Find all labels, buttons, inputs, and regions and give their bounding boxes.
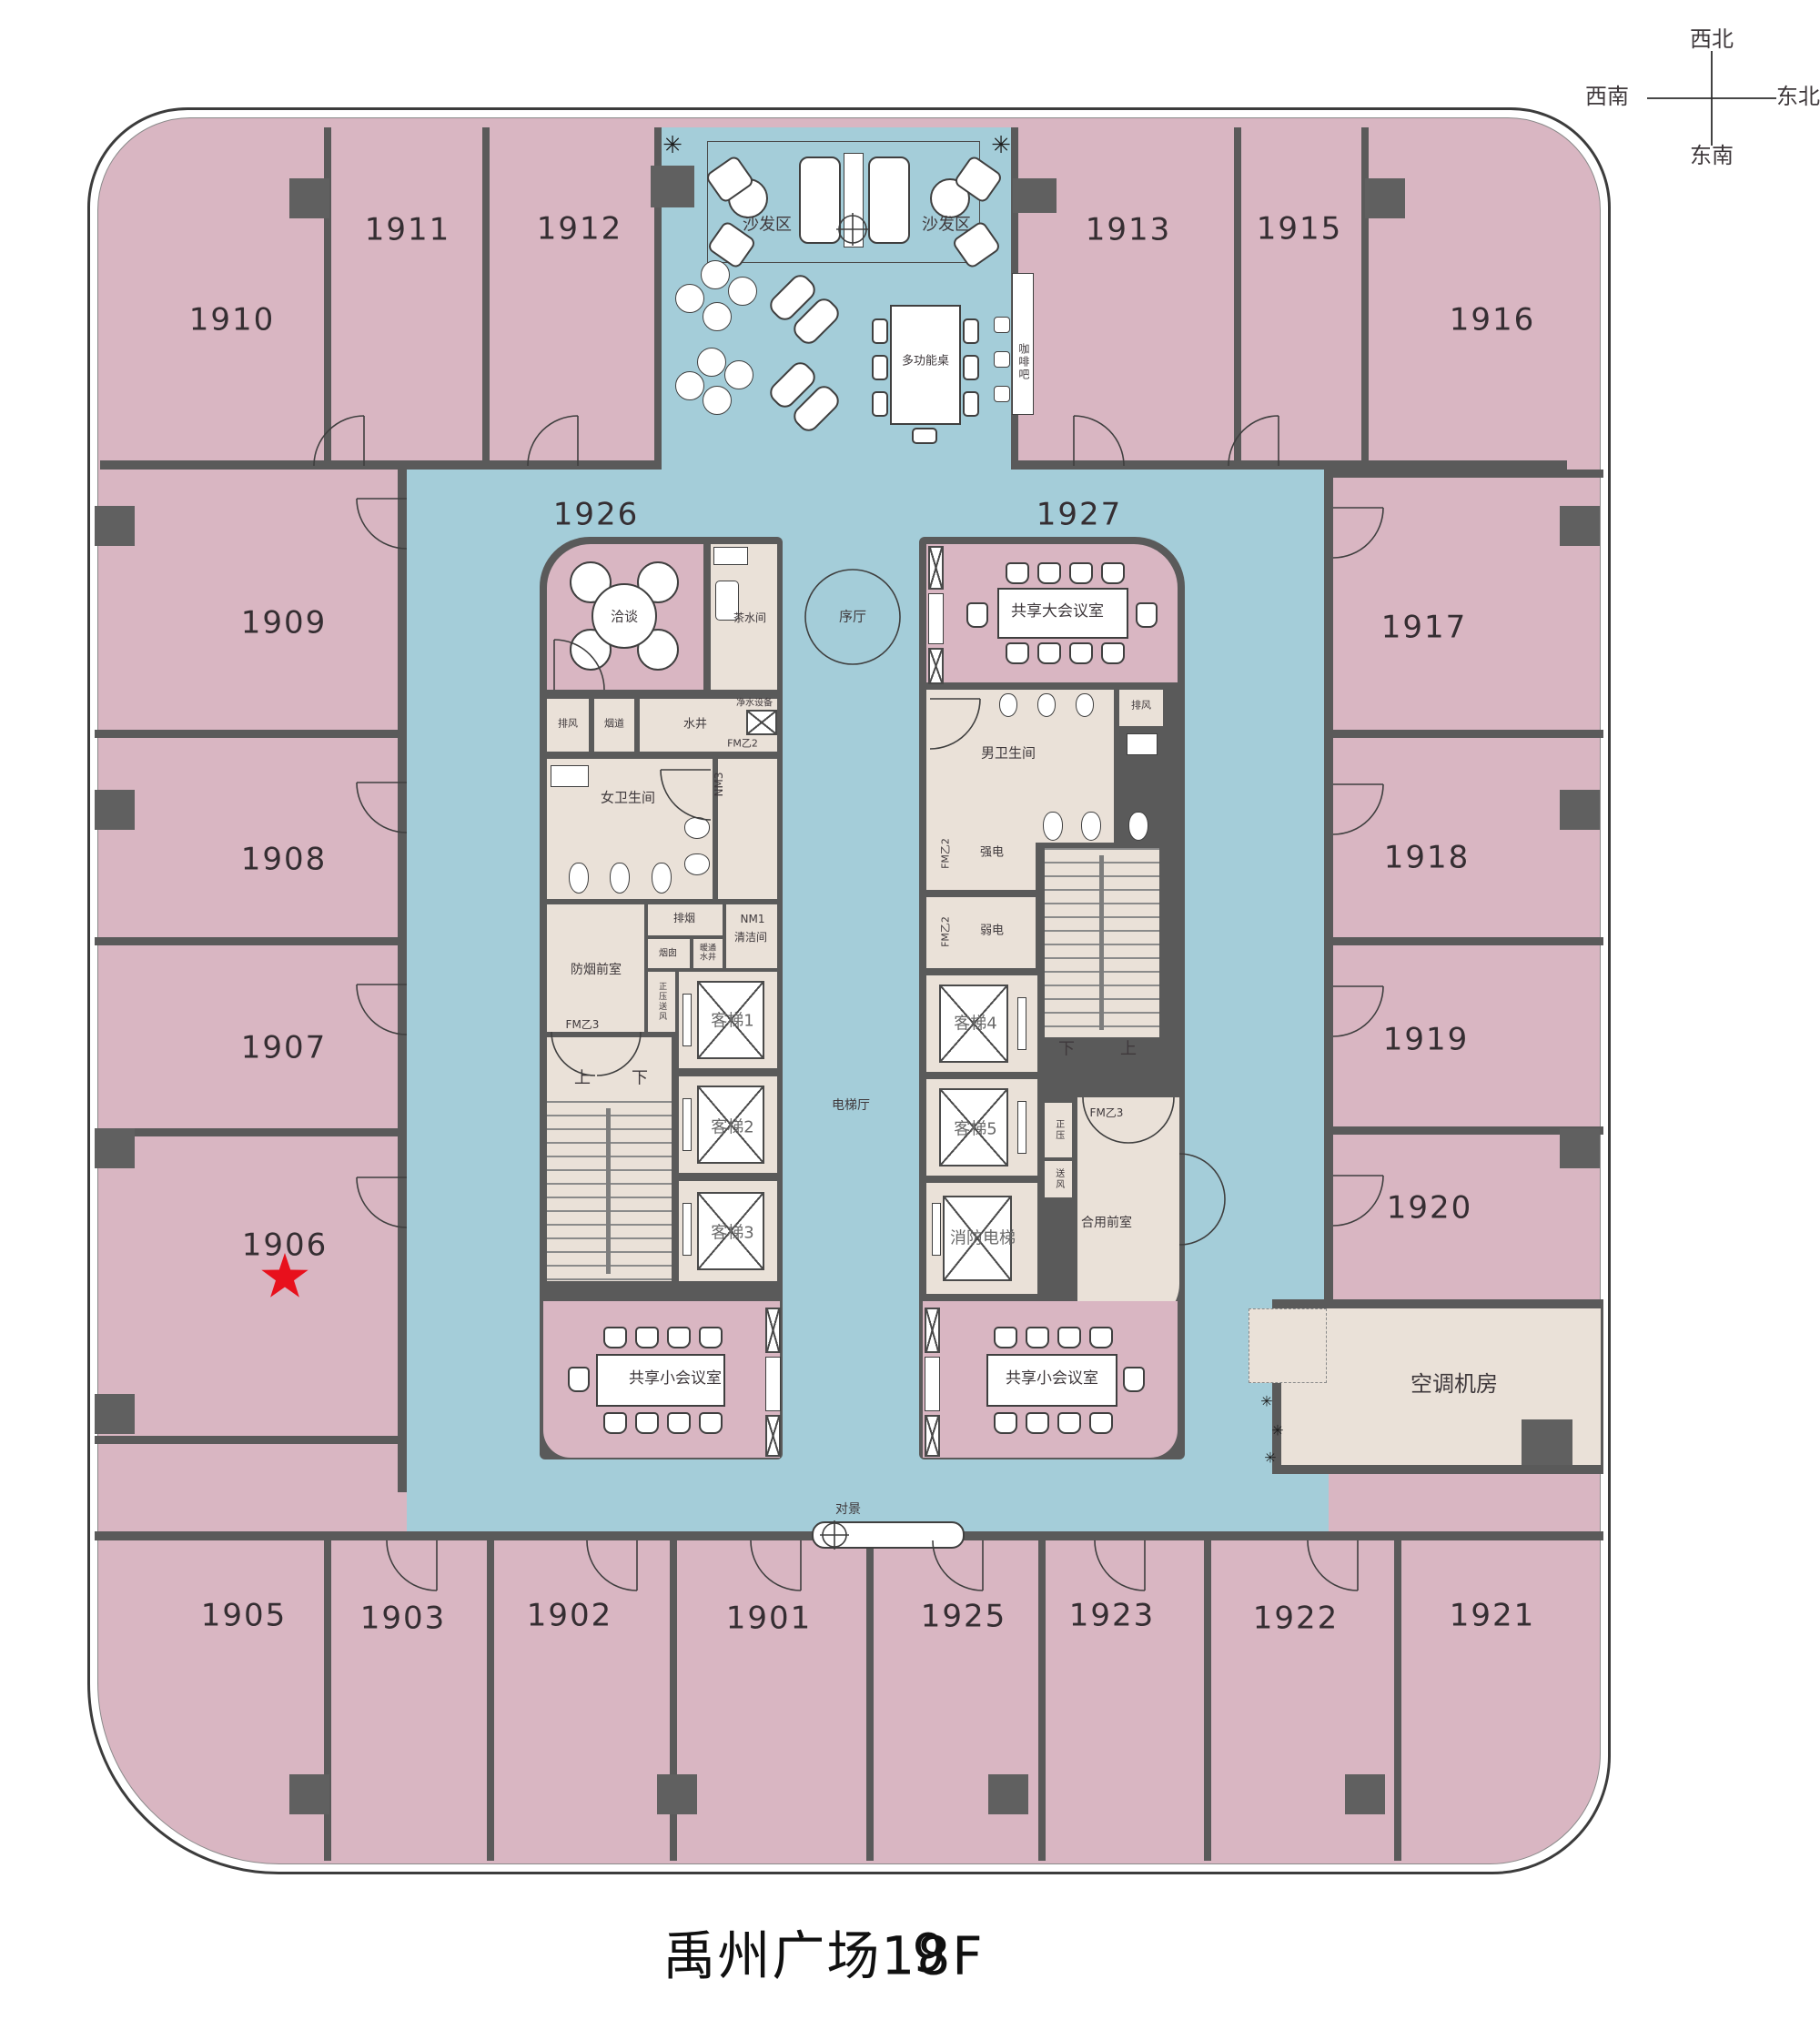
meeting-chair [1069, 562, 1093, 584]
meeting-chair [994, 1412, 1017, 1434]
weak-elec-label: 弱电 [980, 925, 1004, 939]
large-meeting-label: 共享大会议室 [1011, 603, 1104, 621]
floorplan-page: { "title": { "prefix": "禹州广场1", "digit_b… [0, 0, 1820, 2040]
smoke-exhaust-label: 排烟 [673, 913, 695, 925]
lounge-chair [675, 284, 704, 313]
lift-door [1017, 997, 1026, 1050]
meeting-chair [699, 1327, 723, 1348]
room-1919-label: 1919 [1383, 1022, 1470, 1057]
meeting-chair [1006, 642, 1029, 664]
lounge-chair [703, 302, 732, 331]
lounge-chair [675, 371, 704, 400]
column [988, 1774, 1028, 1814]
fm-b2-b-label: FM乙2 [941, 916, 953, 947]
stairs-down-label-right: 下 [1058, 1041, 1075, 1060]
sofa [799, 157, 841, 244]
wall [1324, 937, 1603, 945]
lift-door [682, 994, 692, 1046]
meeting-chair [1006, 562, 1029, 584]
column [1522, 1419, 1572, 1465]
feature-view-label: 对景 [835, 1502, 861, 1517]
stairs-up-label: 上 [574, 1070, 591, 1089]
room-1907-label: 1907 [241, 1030, 328, 1065]
hvac-room-label: 空调机房 [1410, 1372, 1498, 1398]
wall [1038, 1540, 1046, 1861]
column [95, 1128, 135, 1168]
nm3-label: NM3 [713, 773, 726, 797]
lounge-chair [728, 277, 757, 306]
sofa-area-left-label: 沙发区 [743, 217, 792, 236]
water-shaft-label: 水井 [683, 719, 707, 732]
exhaust-right-label: 排风 [1131, 701, 1151, 712]
room-1921-label: 1921 [1450, 1598, 1536, 1633]
column [95, 1394, 135, 1434]
room-1923-label: 1923 [1069, 1598, 1156, 1633]
room-1903-label: 1903 [360, 1601, 447, 1636]
room-1922-label: 1922 [1253, 1601, 1340, 1636]
stair-rail [606, 1108, 611, 1274]
meeting-chair [1089, 1327, 1113, 1348]
room-1913-label: 1913 [1086, 212, 1172, 247]
lift5-label: 客梯5 [954, 1121, 996, 1140]
meeting-chair [1123, 1367, 1145, 1392]
toilet [684, 853, 710, 875]
table-chair [872, 355, 888, 380]
meeting-chair [1069, 642, 1093, 664]
toilet [684, 817, 710, 839]
room-1901-label: 1901 [726, 1601, 813, 1636]
wall [1324, 730, 1603, 738]
wall [95, 1128, 407, 1136]
column [1560, 1128, 1600, 1168]
lift-door [682, 1203, 692, 1256]
exhaust-label: 排风 [558, 719, 578, 731]
column [651, 166, 694, 207]
wall [1204, 1540, 1211, 1861]
room-1909-label: 1909 [241, 605, 328, 641]
table-chair [912, 428, 937, 444]
plant-icon: ✳ [1271, 1422, 1283, 1439]
column [289, 1774, 329, 1814]
toilet [1128, 812, 1148, 841]
wall [1234, 127, 1241, 466]
pressure-b-label: 送风 [1053, 1168, 1064, 1190]
bar-stool [994, 317, 1010, 333]
meeting-chair [603, 1412, 627, 1434]
lounge-chair [697, 348, 726, 377]
room-1915-label: 1915 [1257, 211, 1343, 247]
plant-icon: ✳ [991, 132, 1011, 159]
column [1345, 1774, 1385, 1814]
compass-northwest-label: 西北 [1690, 27, 1734, 53]
shaft-strip [765, 1357, 781, 1411]
meeting-chair [1089, 1412, 1113, 1434]
column [1013, 178, 1057, 213]
lounge-chair [703, 386, 732, 415]
title-prefix: 禹州广场1 [662, 1925, 916, 1987]
womens-sink [551, 765, 589, 787]
plant-icon: ✳ [1264, 1449, 1276, 1467]
mens-sink [1127, 733, 1158, 755]
meeting-chair [667, 1327, 691, 1348]
room-1911-label: 1911 [365, 212, 451, 247]
meeting-chair [1057, 1412, 1081, 1434]
lift3-label: 客梯3 [711, 1225, 753, 1244]
mens-room-label: 男卫生间 [981, 745, 1036, 761]
column [1365, 178, 1405, 218]
title-digit-stack: 89 [916, 1926, 952, 1987]
lift-door [932, 1203, 941, 1256]
compass-northeast-label: 东北 [1776, 85, 1820, 110]
wall [95, 937, 407, 945]
room-1925-label: 1925 [921, 1599, 1007, 1634]
stairs-down-label: 下 [632, 1070, 648, 1089]
shared-lobby-label: 合用前室 [1081, 1216, 1132, 1230]
pressure-air-label: 正压送风 [657, 982, 666, 1022]
bar-stool [994, 351, 1010, 368]
urinal [999, 693, 1017, 717]
room-1920-label: 1920 [1387, 1190, 1473, 1226]
fm-b2-a-label: FM乙2 [941, 838, 953, 869]
wall [100, 460, 662, 470]
meeting-chair [1037, 562, 1061, 584]
wall [95, 730, 407, 738]
shaft-box [928, 546, 944, 590]
toilet [1043, 812, 1063, 841]
table-chair [963, 355, 979, 380]
meeting-chair [1037, 642, 1061, 664]
wall [1011, 460, 1567, 470]
urinal [1037, 693, 1056, 717]
toilet [1081, 812, 1101, 841]
vestibule [718, 759, 777, 899]
wall [398, 466, 407, 1492]
shaft-box [925, 1415, 940, 1457]
meeting-chair [1101, 562, 1125, 584]
room-1912-label: 1912 [537, 211, 623, 247]
foyer-label: 序厅 [839, 609, 866, 624]
wall [487, 1540, 494, 1861]
table-chair [872, 318, 888, 344]
shaft-box [765, 1415, 781, 1457]
hvac-shaft-label: 暖通水井 [698, 944, 718, 964]
page-title: 禹州广场189F [662, 1926, 984, 1987]
lounge-chair [724, 360, 753, 389]
bar-stool [994, 386, 1010, 402]
small-meeting-right-label: 共享小会议室 [1006, 1370, 1098, 1389]
wall [1324, 470, 1603, 478]
meeting-chair [635, 1327, 659, 1348]
toilet [652, 863, 672, 894]
stair-rail [1099, 855, 1104, 1030]
tea-room-label: 茶水间 [733, 612, 766, 625]
room-1908-label: 1908 [241, 842, 328, 877]
negotiation-label: 洽谈 [611, 609, 638, 624]
womens-room-label: 女卫生间 [601, 790, 655, 805]
urinal [1076, 693, 1094, 717]
tea-counter [713, 547, 748, 565]
wall [1324, 466, 1333, 1306]
meeting-chair [966, 602, 988, 628]
shaft-box [925, 1308, 940, 1353]
water-purifier-label: 净水设备 [736, 698, 773, 709]
smoke-lobby-label: 防烟前室 [571, 963, 622, 977]
fm-b3-label: FM乙3 [566, 1019, 600, 1032]
chimney-label: 烟囱 [659, 948, 677, 959]
shared-lobby [1077, 1097, 1179, 1325]
title-digit-front: 9 [912, 1924, 947, 1984]
meeting-chair [635, 1412, 659, 1434]
wall [482, 127, 490, 466]
shaft-strip [925, 1357, 940, 1411]
sofa-side-column [844, 153, 864, 247]
nm1-label: NM1 [741, 914, 765, 926]
multi-table-label: 多功能桌 [902, 356, 949, 369]
meeting-chair [603, 1327, 627, 1348]
sofa-area-right-label: 沙发区 [922, 217, 971, 236]
wall [866, 1540, 874, 1861]
strong-elec-label: 强电 [980, 847, 1004, 861]
lift-door [682, 1098, 692, 1151]
column [1560, 790, 1600, 830]
meeting-chair [1136, 602, 1158, 628]
room-1918-label: 1918 [1384, 840, 1471, 875]
meeting-chair [1057, 1327, 1081, 1348]
small-meeting-left-label: 共享小会议室 [629, 1370, 722, 1389]
compass-southeast-label: 东南 [1690, 144, 1734, 169]
toilet [610, 863, 630, 894]
coffee-bar-label: 咖啡吧 [1016, 343, 1029, 381]
lift4-label: 客梯4 [954, 1015, 996, 1035]
water-purifier-unit [746, 710, 777, 735]
column [657, 1774, 697, 1814]
fm-b3-right-label: FM乙3 [1090, 1107, 1124, 1120]
room-1916-label: 1916 [1450, 302, 1536, 338]
stair-landing-left [547, 1037, 672, 1101]
flue-label: 烟道 [604, 719, 624, 731]
compass-cross [1647, 51, 1776, 146]
meeting-chair [1101, 642, 1125, 664]
shaft-box [765, 1308, 781, 1353]
lift-door [1017, 1101, 1026, 1154]
lift2-label: 客梯2 [711, 1119, 753, 1138]
compass-southwest-label: 西南 [1585, 85, 1629, 110]
pressure-a-label: 正压 [1053, 1119, 1064, 1141]
column [1560, 506, 1600, 546]
column [95, 790, 135, 830]
stairs-up-label-right: 上 [1120, 1041, 1137, 1060]
table-chair [872, 391, 888, 417]
table-chair [963, 391, 979, 417]
column [95, 506, 135, 546]
elevator-hall-label: 电梯厅 [832, 1098, 870, 1113]
lift1-label: 客梯1 [711, 1013, 753, 1032]
hvac-vestibule [1249, 1308, 1327, 1383]
lounge-chair [701, 260, 730, 289]
sofa [868, 157, 910, 244]
room-1905-label: 1905 [201, 1598, 288, 1633]
plant-icon: ✳ [662, 132, 682, 159]
room-1906-label: 1906 [242, 1227, 329, 1263]
plant-icon: ✳ [1260, 1393, 1272, 1410]
meeting-chair [667, 1412, 691, 1434]
column [289, 178, 329, 218]
fm-b2-label: FM乙2 [727, 739, 758, 751]
meeting-chair [699, 1412, 723, 1434]
fire-lift-label: 消防电梯 [950, 1230, 1016, 1249]
meeting-chair [568, 1367, 590, 1392]
shaft-box [928, 648, 944, 684]
wall [95, 1436, 407, 1444]
cleaning-room-label: 清洁间 [734, 932, 767, 944]
room-1926-label: 1926 [553, 497, 640, 532]
feature-bench [812, 1521, 965, 1549]
wall [1394, 1540, 1401, 1861]
title-suffix: F [952, 1925, 984, 1987]
room-1910-label: 1910 [189, 302, 276, 338]
shaft-strip [928, 593, 944, 644]
room-1917-label: 1917 [1381, 610, 1468, 645]
meeting-chair [1026, 1412, 1049, 1434]
room-1902-label: 1902 [527, 1598, 613, 1633]
meeting-chair [1026, 1327, 1049, 1348]
table-chair [963, 318, 979, 344]
toilet [569, 863, 589, 894]
meeting-chair [994, 1327, 1017, 1348]
room-1927-label: 1927 [1036, 497, 1123, 532]
